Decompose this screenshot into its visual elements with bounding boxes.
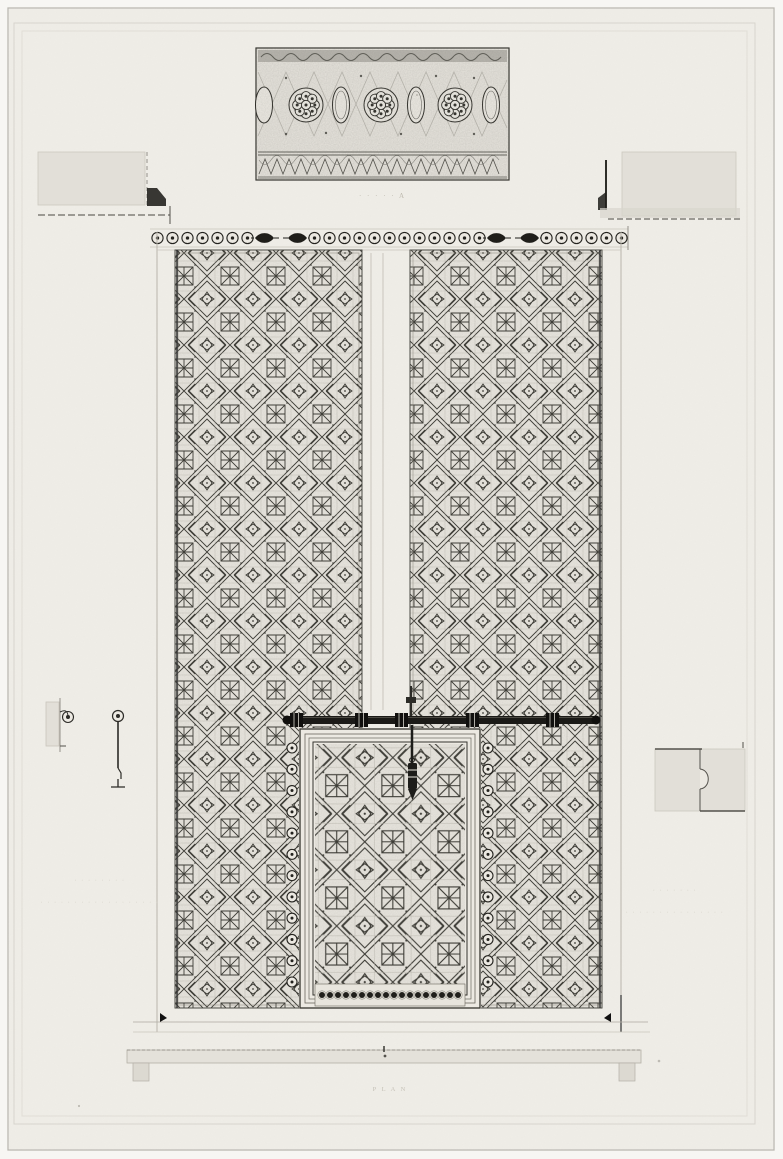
wicket-door xyxy=(287,728,493,1009)
pivot-plan-detail-right xyxy=(655,742,745,811)
left-margin-note-line1: · · · · · · · · xyxy=(30,876,170,886)
plan-caption: P L A N xyxy=(330,1085,450,1095)
right-margin-note-line1: · · · · · · · xyxy=(600,886,750,896)
scanned-plate-page: · · · · · A · · · · · · · · · · · · · · … xyxy=(0,0,783,1159)
right-margin-note-line2: · · · · · · · · · · · · · · · xyxy=(595,908,755,918)
left-margin-note-line2: · · · · · · · · · · · · · · · · · · xyxy=(20,898,180,908)
frieze-caption: · · · · · A xyxy=(255,191,510,201)
ornamental-frieze xyxy=(256,48,510,180)
plate-graphic xyxy=(0,0,783,1159)
